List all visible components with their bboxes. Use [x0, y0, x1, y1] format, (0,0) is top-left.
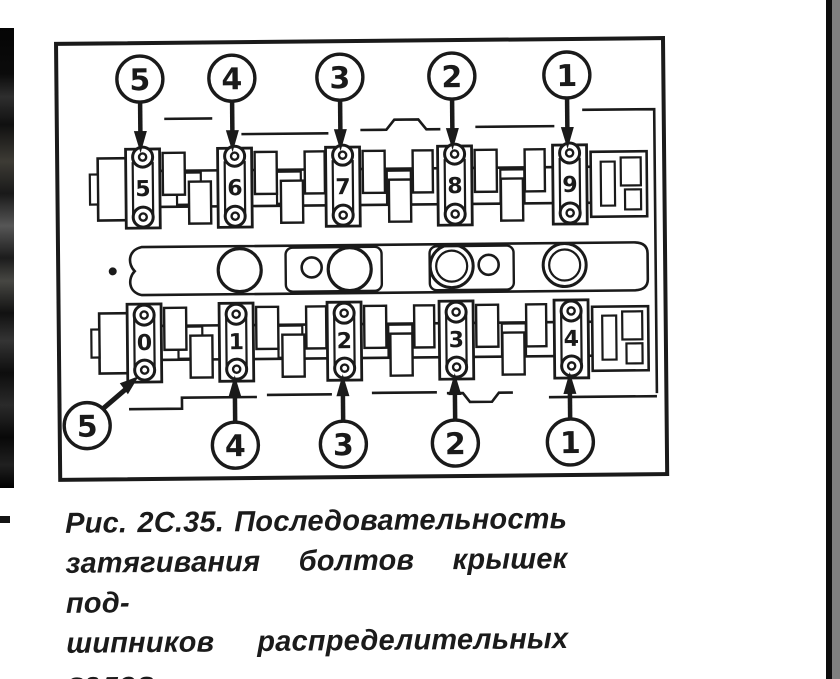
cap-bolt — [560, 203, 580, 223]
cam-lobe — [413, 150, 433, 192]
cap-bolt — [225, 206, 245, 226]
cam-lobe — [164, 308, 186, 350]
cam-lobe — [389, 180, 411, 222]
cap-bolt — [445, 204, 465, 224]
cam-lobe — [163, 153, 185, 195]
callout-number: 2 — [445, 427, 466, 462]
cap-bolt — [334, 303, 354, 323]
sequence-callout-top: 2 — [429, 53, 476, 150]
cam-lobe — [363, 151, 385, 193]
cam-lobe — [364, 306, 386, 348]
cam-lobe — [525, 149, 545, 191]
cam-lobe — [256, 307, 278, 349]
sequence-callout-top: 5 — [117, 56, 164, 153]
sequence-callout-bottom: 2 — [432, 373, 479, 466]
cam-lobe — [475, 150, 497, 192]
sequence-callout-top: 1 — [544, 52, 591, 149]
cap-bolt — [225, 146, 245, 166]
cap-number: 7 — [335, 175, 351, 200]
bearing-cap: 8 — [438, 144, 473, 225]
cap-bolt — [133, 207, 153, 227]
sequence-callout-bottom: 4 — [212, 375, 259, 468]
cam-lobe — [255, 152, 277, 194]
bearing-cap: 5 — [126, 147, 161, 228]
callout-number: 1 — [560, 426, 581, 461]
callout-number: 5 — [77, 410, 98, 445]
cap-bolt — [562, 356, 582, 376]
bearing-cap: 1 — [219, 303, 254, 381]
scan-tilt-wrapper: 56789012345432143215 Рис. 2C.35. Последо… — [0, 0, 840, 679]
cam-lobe — [526, 304, 546, 346]
callout-number: 5 — [129, 63, 150, 98]
locating-dot — [109, 267, 117, 275]
callout-number: 2 — [441, 60, 462, 95]
cap-bolt — [227, 359, 247, 379]
cap-number: 1 — [229, 330, 245, 355]
cap-bolt — [560, 143, 580, 163]
callout-number: 1 — [556, 59, 577, 94]
cap-number: 4 — [564, 327, 580, 352]
bearing-cap: 7 — [326, 145, 361, 226]
caption-line: шипников распределительных — [66, 619, 568, 664]
bearing-cap: 9 — [553, 143, 588, 224]
cam-lobe — [502, 332, 524, 374]
cap-bolt — [335, 358, 355, 378]
callout-number: 3 — [333, 428, 354, 463]
cap-bolt — [446, 302, 466, 322]
cap-number: 6 — [227, 176, 243, 201]
cam-lobe — [305, 151, 325, 193]
callout-number: 3 — [329, 61, 350, 96]
figure-caption: Рис. 2C.35. Последовательность затягиван… — [65, 499, 569, 679]
cam-lobe — [281, 181, 303, 223]
cap-number: 9 — [562, 173, 578, 198]
cap-bolt — [134, 305, 154, 325]
cap-bolt — [445, 144, 465, 164]
cap-number: 5 — [135, 177, 151, 202]
cam-lobe — [282, 335, 304, 377]
cap-bolt — [447, 357, 467, 377]
bearing-cap: 4 — [554, 300, 589, 378]
cap-bolt — [333, 145, 353, 165]
cap-bolt — [133, 147, 153, 167]
bearing-cap: 3 — [439, 301, 474, 379]
cap-number: 0 — [137, 331, 153, 356]
cap-bolt — [561, 301, 581, 321]
caption-line: Рис. 2C.35. Последовательность — [65, 499, 567, 544]
cam-lobe — [414, 305, 434, 347]
camshaft-row-bottom: 01234 — [91, 299, 649, 382]
sequence-callout-top: 3 — [317, 54, 364, 151]
cam-lobe — [476, 305, 498, 347]
camshaft-row-top: 56789 — [90, 142, 648, 228]
sequence-callout-bottom: 1 — [547, 372, 594, 465]
cap-number: 3 — [449, 328, 465, 353]
bearing-cap: 0 — [127, 304, 162, 382]
caption-line: затягивания болтов крышек под- — [65, 539, 568, 624]
right-gray-strip — [832, 0, 840, 679]
cap-number: 8 — [447, 174, 463, 199]
cam-lobe — [189, 181, 211, 223]
sequence-callout-top: 4 — [209, 55, 256, 152]
cam-lobe — [306, 306, 326, 348]
center-journal-strip — [108, 242, 647, 295]
cam-lobe — [390, 333, 412, 375]
cam-lobe — [501, 178, 523, 220]
sequence-callout-bottom-left: 5 — [64, 376, 140, 449]
scanned-manual-page: 56789012345432143215 Рис. 2C.35. Последо… — [0, 0, 840, 679]
callout-stem — [102, 388, 127, 409]
bearing-cap: 2 — [327, 302, 362, 380]
cap-number: 2 — [337, 329, 353, 354]
sequence-callout-bottom: 3 — [320, 374, 367, 467]
cam-lobe — [190, 335, 212, 377]
cap-bolt — [333, 205, 353, 225]
cap-bolt — [226, 304, 246, 324]
callout-number: 4 — [221, 62, 242, 97]
callout-number: 4 — [225, 429, 246, 464]
bearing-cap: 6 — [218, 146, 253, 227]
